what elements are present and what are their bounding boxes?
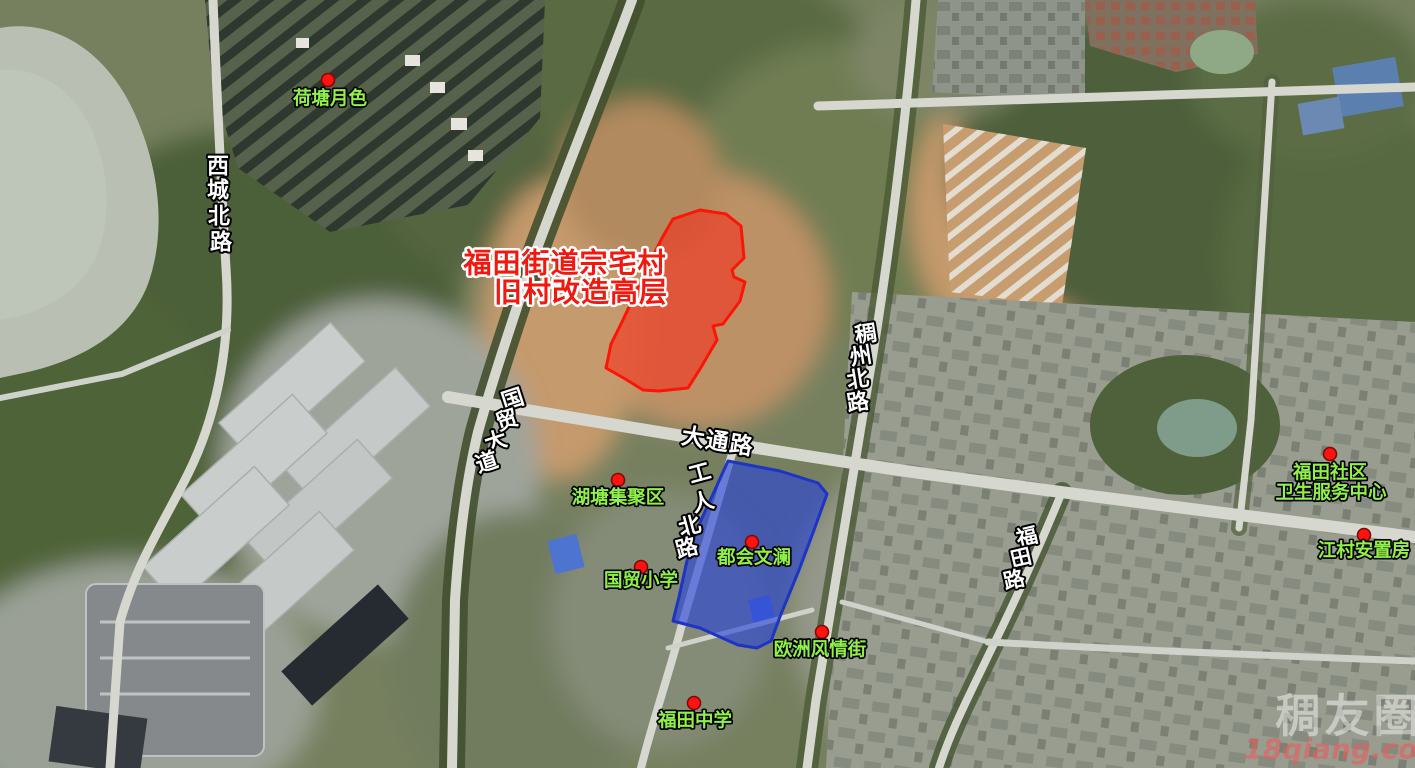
poi-marker-label: 江村安置房 [1318,540,1411,562]
park-pond [1157,399,1237,457]
satellite-map-image[interactable]: 西城北路国贸大道大通路工人北路稠州北路福田路 福田街道宗宅村 旧村改造高层 荷塘… [0,0,1415,768]
poi-marker-label: 福田中学 [657,710,732,732]
poi-marker-label: 都会文澜 [716,547,791,569]
poi-marker-label: 荷塘月色 [293,88,368,110]
road-label-char: 西 [207,155,229,180]
road-label-char: 路 [210,230,233,256]
poi-marker-label: 湖塘集聚区 [572,487,665,509]
road-label-char: 北 [208,205,230,230]
annotation-title: 福田街道宗宅村 旧村改造高层 [462,247,668,309]
north-pond [1190,30,1254,74]
road-label-char: 通 [704,427,731,456]
road-label-char: 城 [207,178,229,204]
poi-marker-dot [322,74,335,87]
watermark-site-url: 18qiang.com [1243,733,1415,766]
road-label-char: 大 [680,423,707,452]
annotation-title-line2: 旧村改造高层 [494,276,668,309]
poi-marker-dot [816,626,829,639]
poi-marker-label: 福田社区 [1292,462,1367,484]
poi-marker-dot [612,474,625,487]
poi-marker-dot [1324,448,1337,461]
construction-site [943,124,1086,306]
poi-marker-label: 国贸小学 [604,570,678,592]
poi-marker-label: 欧洲风情街 [774,639,867,661]
poi-marker-dot [688,697,701,710]
poi-marker-label: 卫生服务中心 [1275,482,1387,504]
north-urban-strip [932,0,1085,102]
